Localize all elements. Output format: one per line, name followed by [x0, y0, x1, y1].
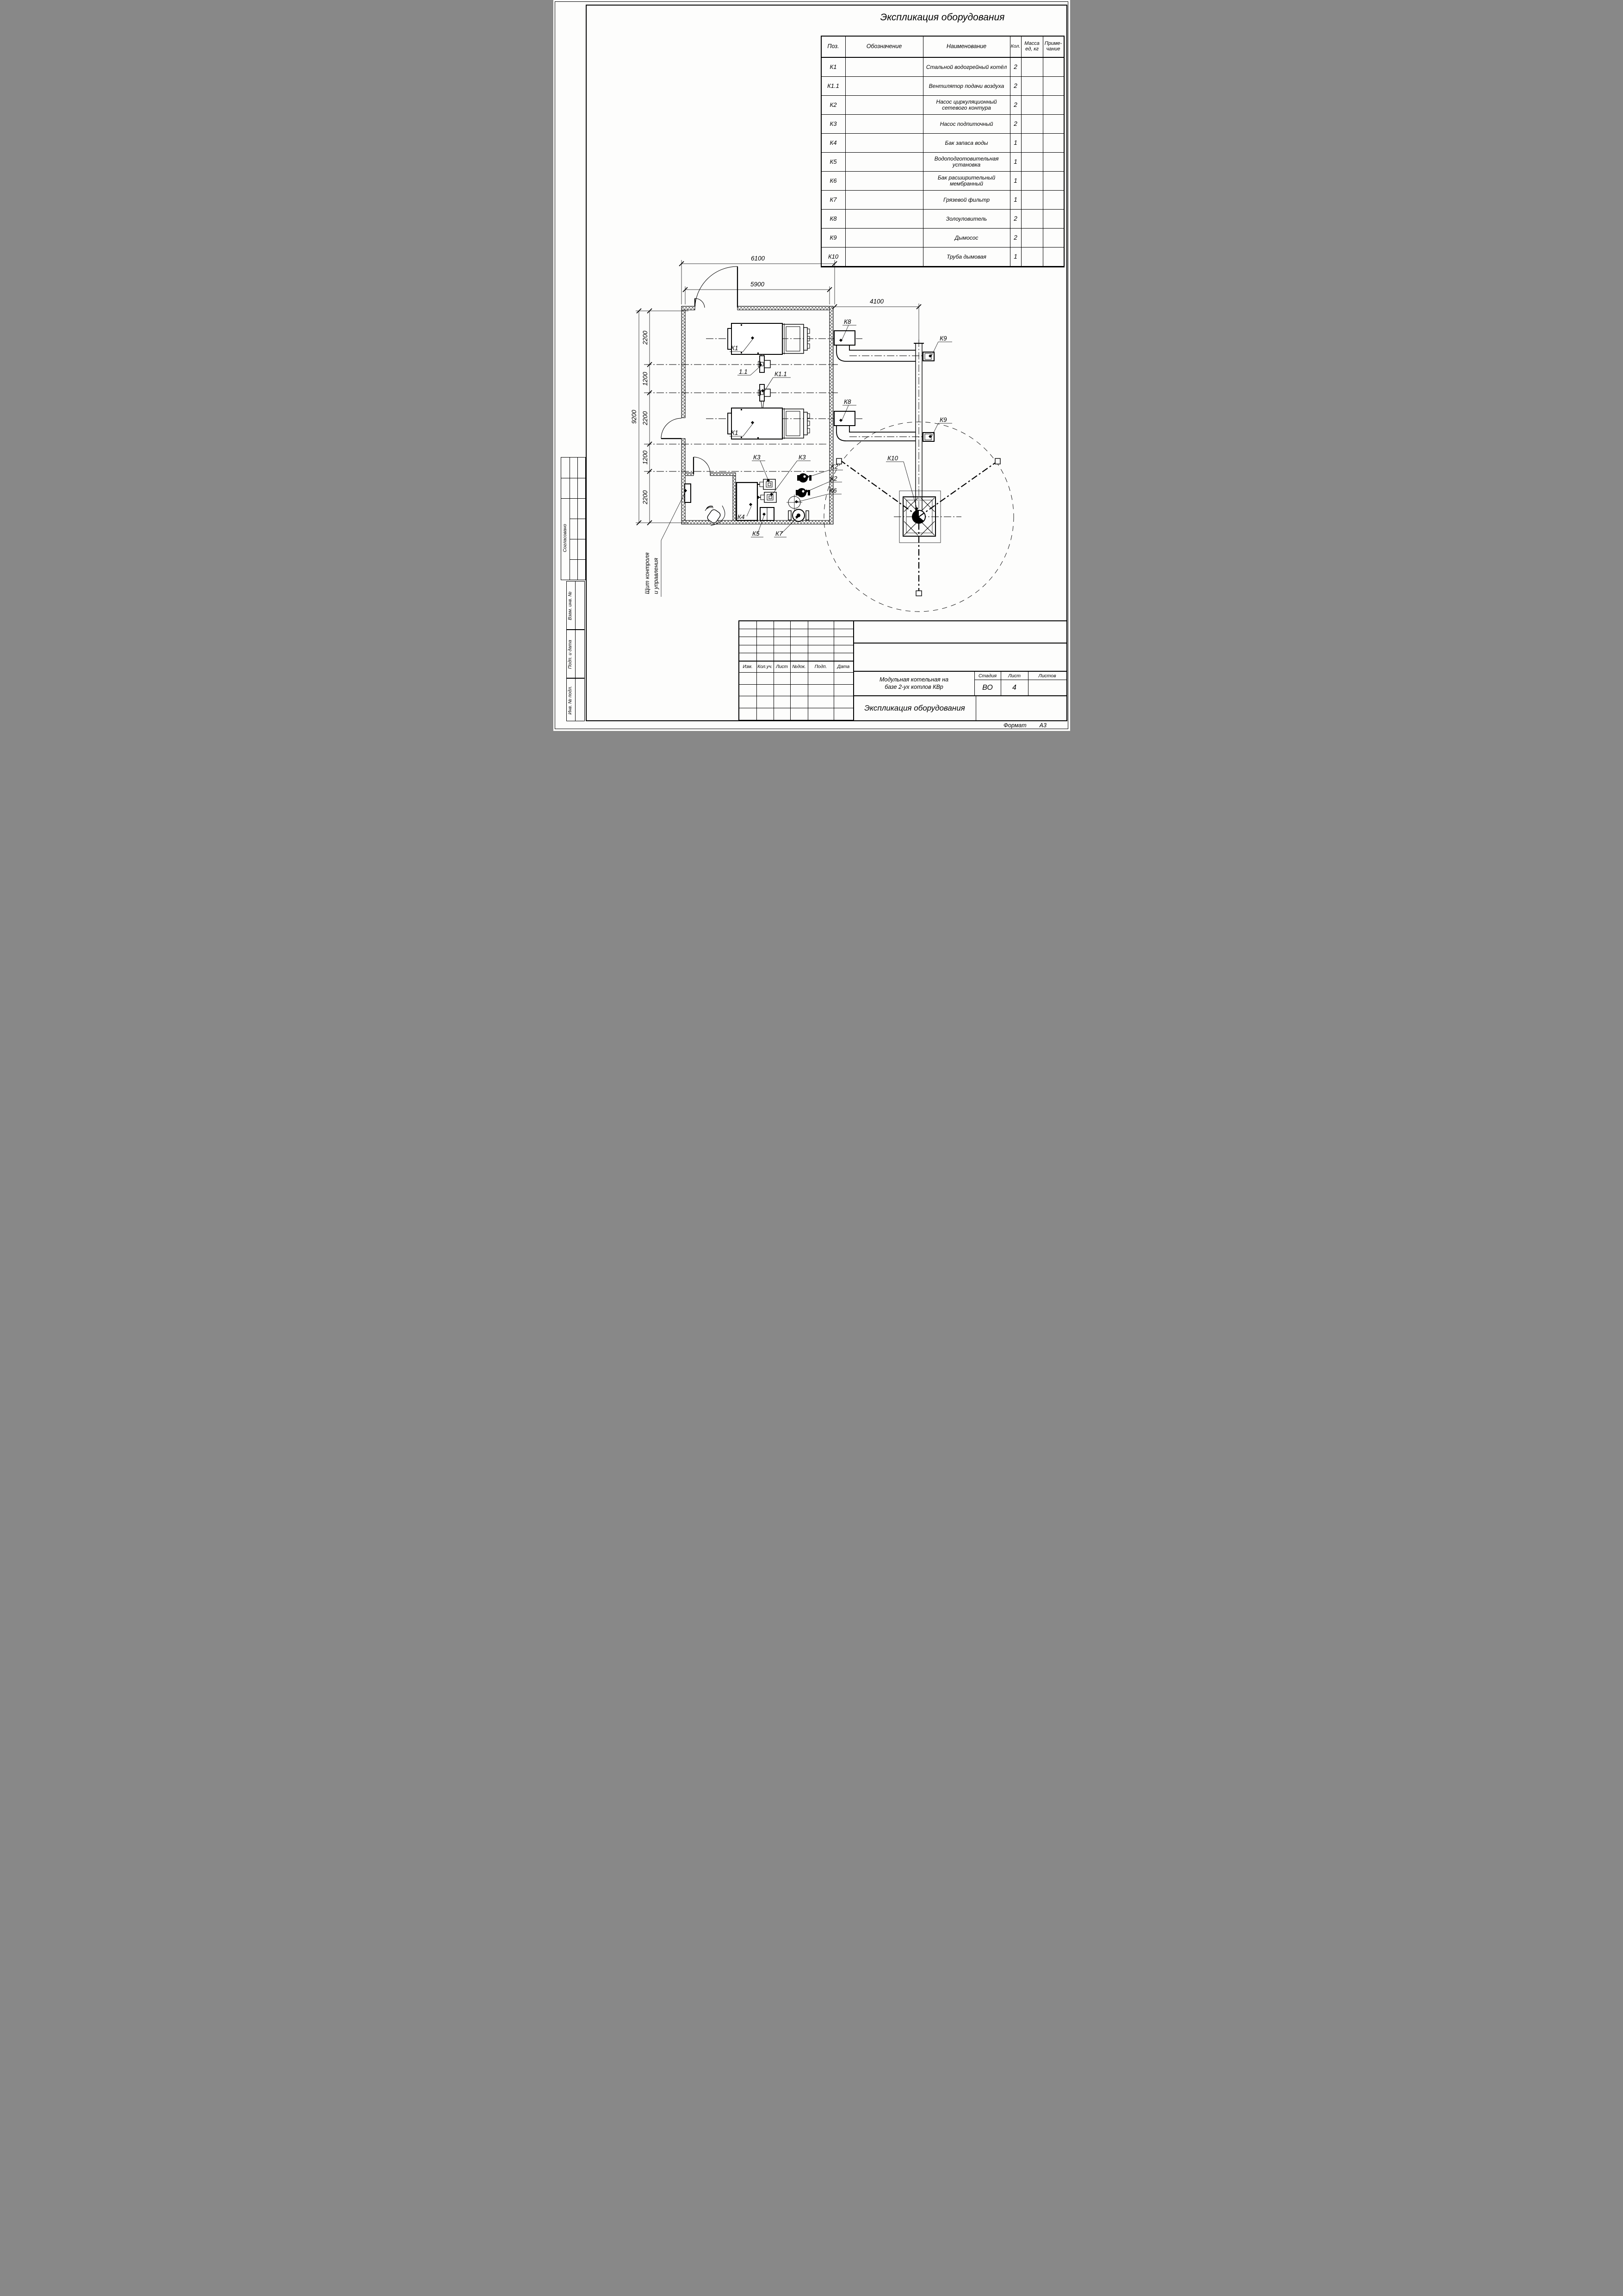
svg-text:К9: К9 — [940, 416, 947, 423]
svg-text:К9: К9 — [940, 335, 947, 342]
plan-label-К3: К3 — [752, 454, 770, 482]
svg-text:К3: К3 — [753, 454, 761, 461]
svg-text:К2: К2 — [831, 463, 838, 470]
plan-label-К2: К2 — [805, 463, 842, 478]
fan-k11-first — [758, 354, 770, 372]
svg-text:К8: К8 — [844, 398, 851, 405]
dimension-label: 6100 — [750, 255, 765, 262]
dimension-labels: 610059004100920022001200220012002200 — [631, 255, 884, 505]
dimension-label: 1200 — [642, 450, 649, 464]
room-annotation: Щит контроляи управления — [644, 552, 659, 594]
ash-catcher-k8-second — [834, 411, 855, 426]
pump-k2-second — [796, 488, 810, 497]
smoke-exhauster-k9-second — [923, 433, 934, 441]
svg-text:К8: К8 — [844, 318, 851, 325]
floor-plan: 610059004100920022001200220012002200 К11… — [553, 0, 1070, 731]
annotation-line1: Щит контроля — [644, 552, 650, 594]
smoke-exhauster-k9-first — [923, 352, 934, 361]
dimension-label: 2200 — [642, 330, 649, 345]
boiler-k1 — [728, 323, 810, 354]
flue-ducts — [836, 343, 924, 511]
svg-text:К10: К10 — [887, 455, 898, 462]
svg-text:К7: К7 — [775, 530, 783, 537]
guy-anchor-right — [995, 458, 1000, 464]
control-panel — [685, 484, 691, 502]
pump-k3-second — [757, 492, 776, 502]
water-treatment-k5 — [760, 507, 774, 520]
svg-text:1.1: 1.1 — [739, 368, 748, 375]
svg-text:К2: К2 — [830, 475, 837, 482]
dimension-label: 2200 — [642, 490, 649, 505]
svg-text:К3: К3 — [799, 454, 806, 461]
dimension-label: 9200 — [631, 409, 638, 424]
dimension-label: 5900 — [750, 281, 764, 288]
drawing-sheet: Экспликация оборудования Поз. Обозначени… — [553, 0, 1070, 731]
dimension-label: 1200 — [642, 371, 649, 386]
fan-k11-second — [758, 384, 770, 408]
dimension-label: 2200 — [642, 411, 649, 426]
svg-text:К1.1: К1.1 — [774, 371, 787, 378]
guy-anchor-bottom — [916, 591, 922, 596]
dimension-label: 4100 — [869, 298, 884, 305]
svg-text:К4: К4 — [737, 514, 744, 520]
mud-filter-k7 — [788, 509, 809, 521]
doors — [661, 266, 737, 474]
svg-text:К6: К6 — [830, 487, 837, 494]
annotation-line2: и управления — [653, 558, 659, 594]
pump-k2-first — [797, 473, 811, 483]
boiler-k1-second — [728, 408, 810, 439]
pump-k3-first — [756, 479, 775, 489]
svg-text:К1: К1 — [731, 345, 738, 352]
ash-catcher-k8-first — [834, 331, 855, 345]
guy-wires — [842, 461, 997, 591]
svg-text:К1: К1 — [731, 429, 738, 436]
